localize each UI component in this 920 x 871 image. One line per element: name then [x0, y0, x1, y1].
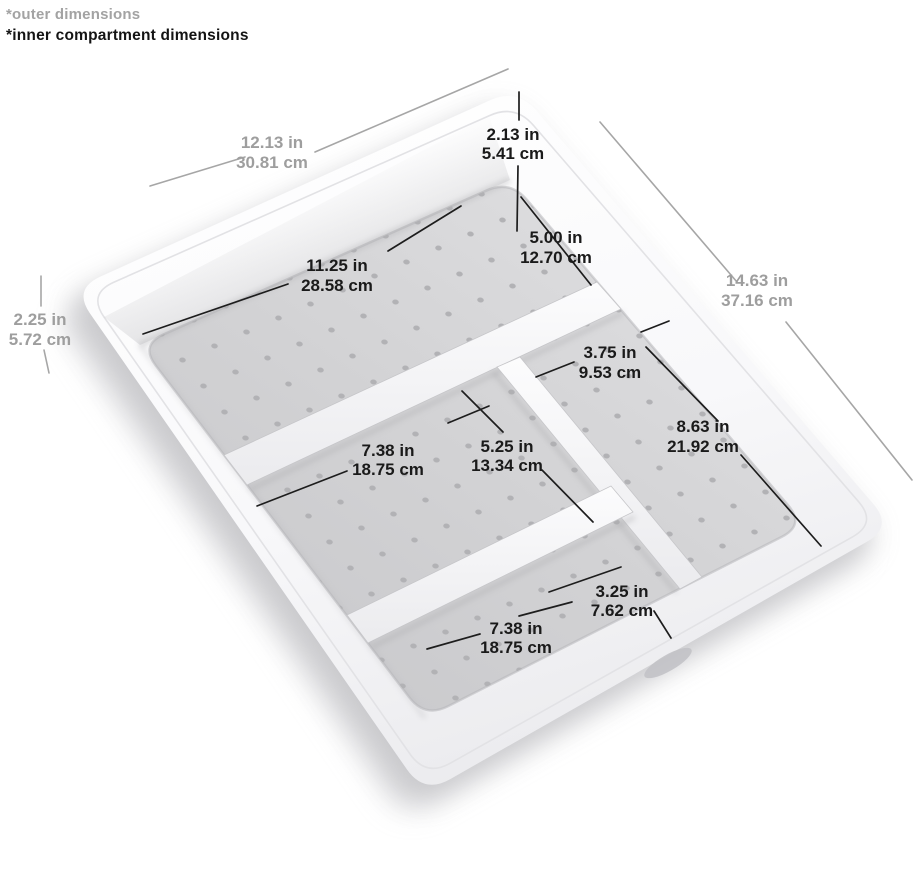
- svg-text:12.13 in: 12.13 in: [241, 133, 303, 152]
- svg-text:3.25 in: 3.25 in: [596, 582, 649, 601]
- svg-text:8.63 in: 8.63 in: [677, 417, 730, 436]
- dim-label-top-compartment-width: 5.00 in 12.70 cm: [520, 228, 592, 267]
- svg-text:11.25 in: 11.25 in: [306, 256, 367, 275]
- dim-label-middle-compartment-width: 5.25 in 13.34 cm: [471, 437, 543, 475]
- svg-text:14.63 in: 14.63 in: [726, 271, 788, 290]
- svg-text:18.75 cm: 18.75 cm: [480, 638, 552, 657]
- svg-text:7.38 in: 7.38 in: [362, 441, 415, 460]
- dim-label-outer-height: 2.25 in 5.72 cm: [9, 310, 71, 349]
- dim-label-bottom-compartment-width: 3.25 in 7.62 cm: [591, 582, 653, 620]
- svg-text:21.92 cm: 21.92 cm: [667, 437, 739, 456]
- svg-text:30.81 cm: 30.81 cm: [236, 153, 308, 172]
- svg-text:7.38 in: 7.38 in: [490, 619, 543, 638]
- svg-text:2.13 in: 2.13 in: [487, 125, 540, 144]
- svg-text:5.41 cm: 5.41 cm: [482, 144, 544, 163]
- svg-text:9.53 cm: 9.53 cm: [579, 363, 641, 382]
- svg-text:2.25 in: 2.25 in: [14, 310, 67, 329]
- dim-label-inner-depth: 2.13 in 5.41 cm: [482, 125, 544, 163]
- svg-text:18.75 cm: 18.75 cm: [352, 460, 424, 479]
- svg-text:5.25 in: 5.25 in: [481, 437, 534, 456]
- dim-label-middle-compartment-length: 7.38 in 18.75 cm: [352, 441, 424, 479]
- dim-label-bottom-compartment-length: 7.38 in 18.75 cm: [480, 619, 552, 657]
- svg-text:37.16 cm: 37.16 cm: [721, 291, 793, 310]
- tray-diagram-svg: 12.13 in 30.81 cm 2.13 in 5.41 cm 5.00 i…: [0, 0, 920, 871]
- dim-label-outer-width: 14.63 in 37.16 cm: [721, 271, 793, 310]
- svg-text:5.72 cm: 5.72 cm: [9, 330, 71, 349]
- svg-text:12.70 cm: 12.70 cm: [520, 248, 592, 267]
- dim-label-right-compartment-length: 8.63 in 21.92 cm: [667, 417, 739, 456]
- svg-text:28.58 cm: 28.58 cm: [301, 276, 373, 295]
- dim-label-top-compartment-length: 11.25 in 28.58 cm: [301, 256, 373, 295]
- dim-label-right-compartment-width: 3.75 in 9.53 cm: [579, 343, 641, 382]
- svg-text:13.34 cm: 13.34 cm: [471, 456, 543, 475]
- svg-text:7.62 cm: 7.62 cm: [591, 601, 653, 620]
- dim-label-outer-length: 12.13 in 30.81 cm: [236, 133, 308, 172]
- svg-text:5.00 in: 5.00 in: [530, 228, 583, 247]
- product-dimension-diagram: *outer dimensions *inner compartment dim…: [0, 0, 920, 871]
- svg-text:3.75 in: 3.75 in: [584, 343, 637, 362]
